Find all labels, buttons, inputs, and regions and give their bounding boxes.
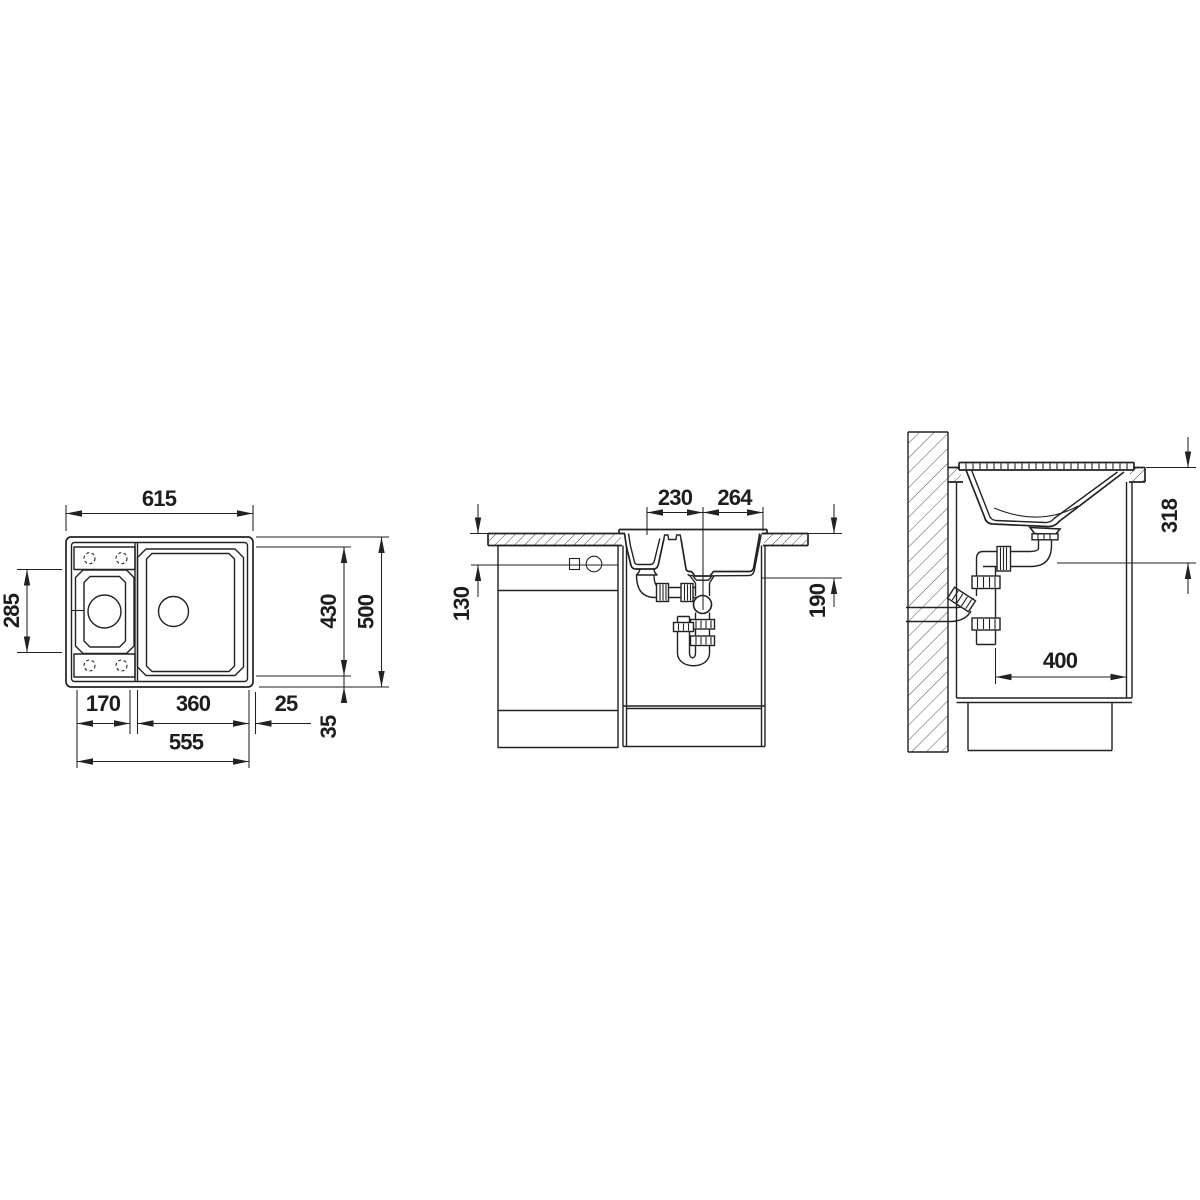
dim-label-400: 400 — [1043, 648, 1078, 673]
wall — [908, 432, 948, 752]
pipe-coupling — [674, 623, 694, 632]
dim-label-318: 318 — [1157, 498, 1182, 533]
pipe-coupling — [1032, 534, 1058, 540]
pipe-coupling — [691, 636, 715, 646]
dim-label-35: 35 — [316, 715, 341, 738]
pipe-coupling — [681, 584, 693, 602]
dim-label-230: 230 — [658, 485, 693, 510]
pipe-coupling — [972, 618, 1000, 630]
pipe-coupling — [997, 547, 1011, 572]
dim-label-555: 555 — [169, 730, 204, 755]
pipe-coupling — [972, 576, 1000, 589]
dim-label-264: 264 — [717, 485, 753, 510]
sink-spec-sheet: 615 285 430 500 35 170 — [0, 0, 1200, 1200]
dim-label-615: 615 — [142, 486, 177, 511]
dim-label-500: 500 — [354, 594, 379, 629]
dim-label-430: 430 — [316, 594, 341, 629]
background — [0, 0, 1200, 1200]
dim-label-170: 170 — [86, 691, 121, 716]
dim-label-130: 130 — [449, 586, 474, 621]
sink-technical-drawing: 615 285 430 500 35 170 — [0, 0, 1200, 1200]
dim-label-25: 25 — [275, 691, 298, 716]
dim-label-285: 285 — [0, 593, 24, 628]
pipe-coupling — [657, 584, 669, 602]
dim-label-190: 190 — [805, 583, 830, 618]
dim-label-360: 360 — [176, 691, 211, 716]
